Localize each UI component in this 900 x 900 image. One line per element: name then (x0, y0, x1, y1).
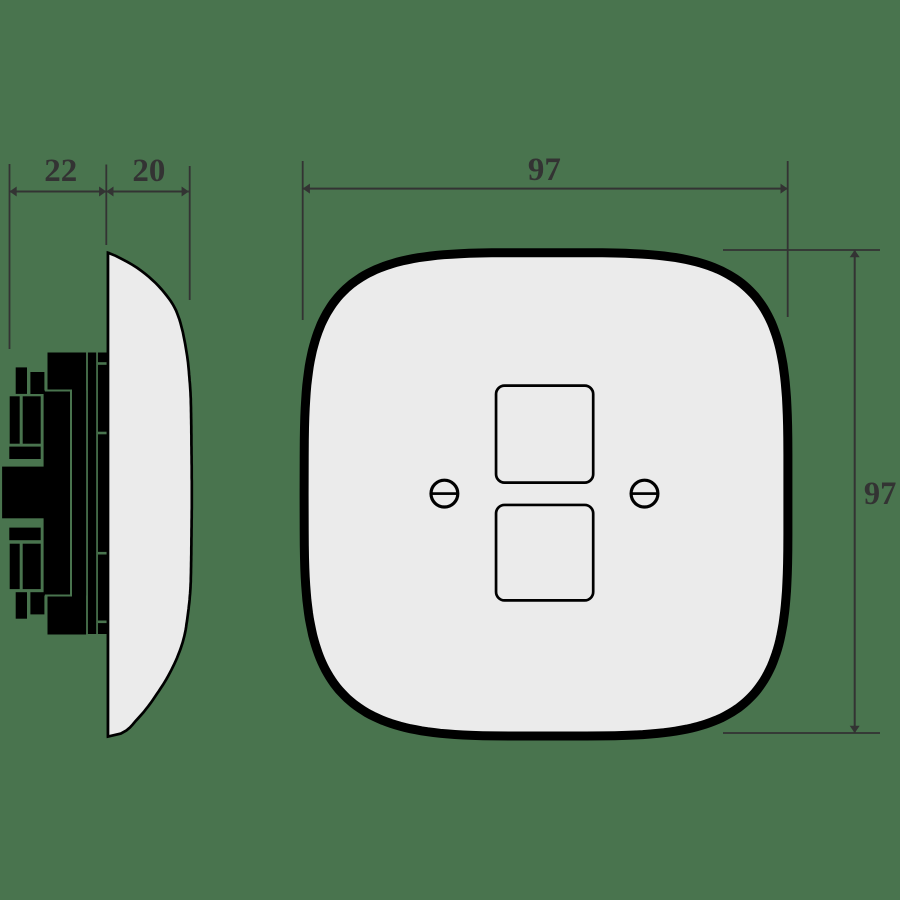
svg-text:22: 22 (44, 153, 77, 189)
svg-text:20: 20 (132, 153, 165, 189)
svg-text:97: 97 (528, 152, 561, 188)
svg-text:97: 97 (864, 476, 897, 512)
